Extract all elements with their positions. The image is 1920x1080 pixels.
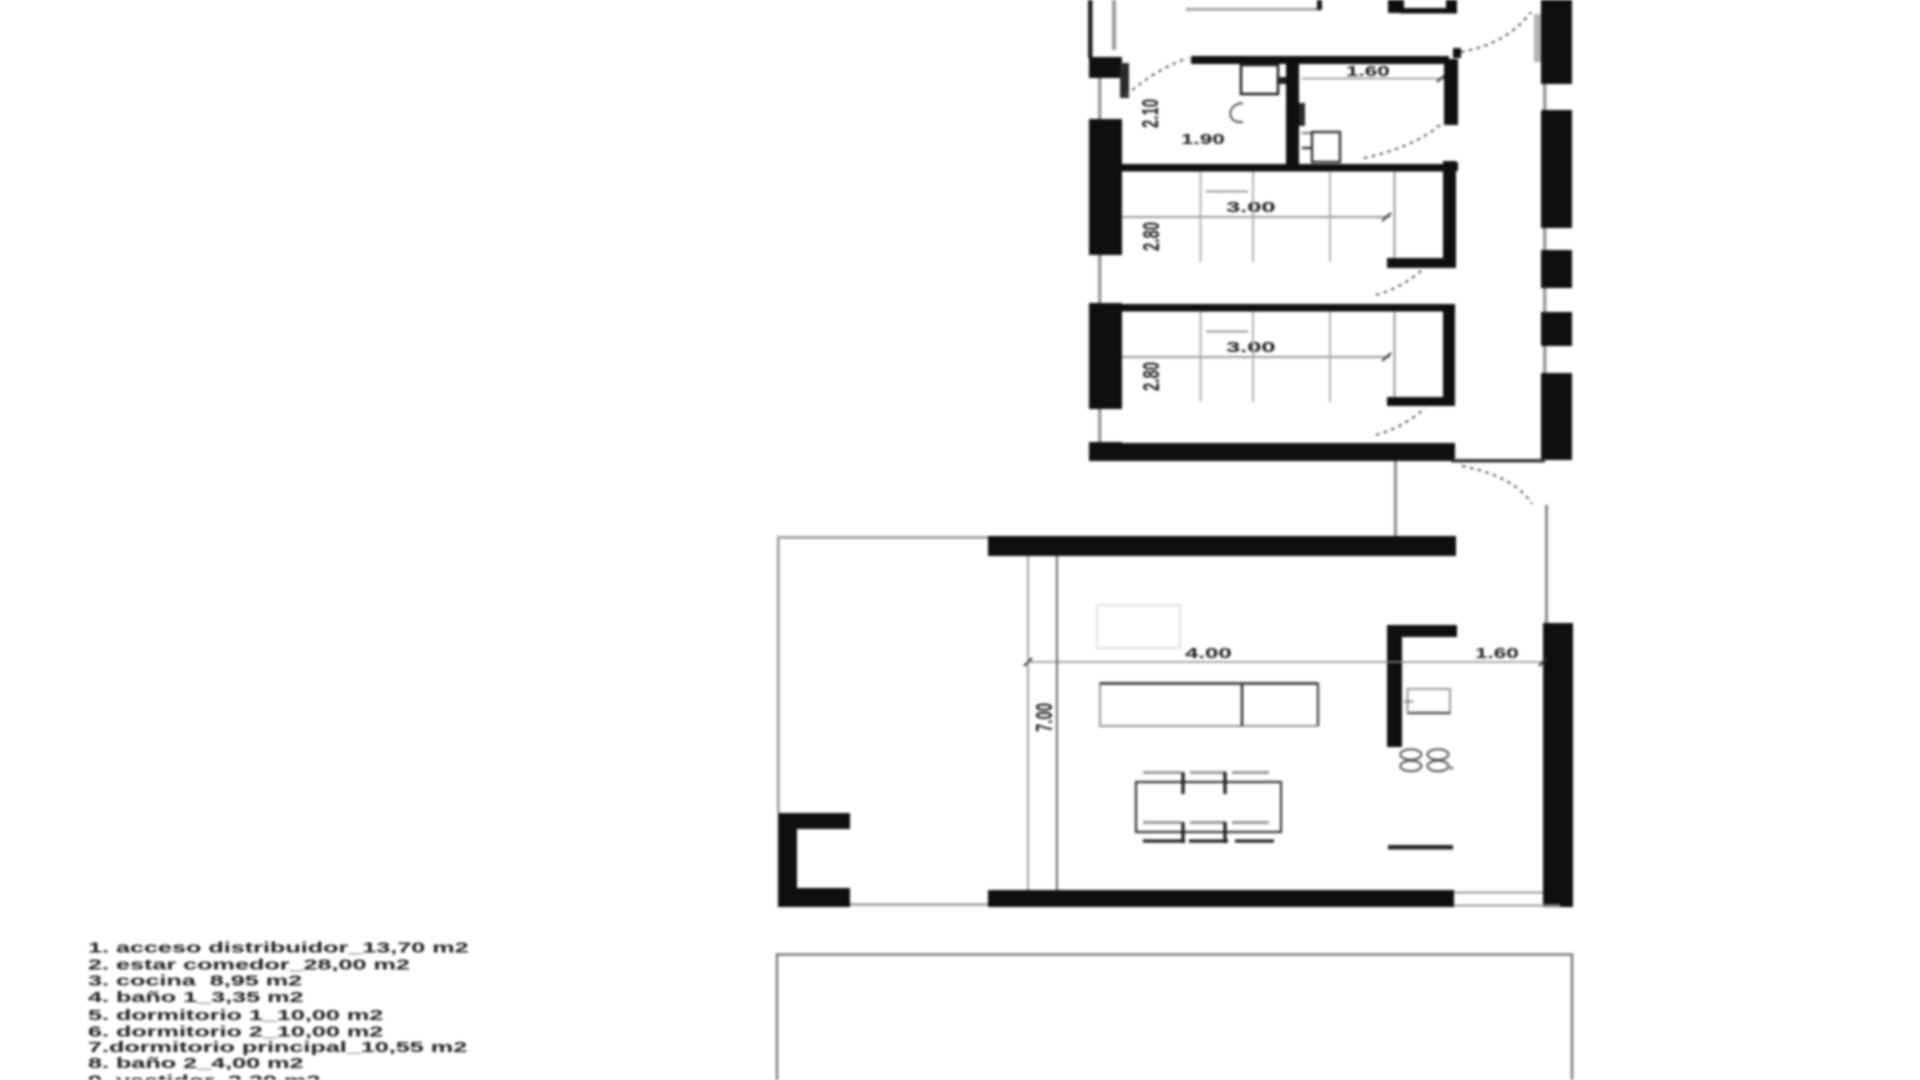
- svg-text:2.80: 2.80: [1139, 222, 1165, 251]
- svg-text:4.00: 4.00: [1185, 645, 1232, 661]
- svg-text:3.00: 3.00: [1226, 199, 1276, 215]
- svg-text:1.60: 1.60: [1475, 645, 1519, 661]
- svg-text:7.dormitorio principal_10,55 m: 7.dormitorio principal_10,55 m2: [88, 1039, 467, 1056]
- svg-text:5. dormitorio 1_10,00 m2: 5. dormitorio 1_10,00 m2: [88, 1007, 383, 1024]
- svg-text:6. dormitorio 2_10,00 m2: 6. dormitorio 2_10,00 m2: [88, 1023, 383, 1040]
- svg-text:2. estar comedor_28,00 m2: 2. estar comedor_28,00 m2: [88, 956, 410, 973]
- svg-text:2.10: 2.10: [1138, 99, 1164, 128]
- svg-text:7.00: 7.00: [1032, 703, 1058, 732]
- svg-text:1.90: 1.90: [1181, 131, 1225, 147]
- svg-text:2.80: 2.80: [1139, 362, 1165, 391]
- svg-text:3. cocina 8,95 m2: 3. cocina 8,95 m2: [88, 972, 302, 989]
- svg-text:8. baño 2_4,00 m2: 8. baño 2_4,00 m2: [88, 1055, 304, 1072]
- svg-text:1.60: 1.60: [1346, 63, 1390, 79]
- svg-text:1. acceso distribuidor_13,70 m: 1. acceso distribuidor_13,70 m2: [88, 939, 469, 956]
- svg-text:3.00: 3.00: [1226, 339, 1276, 355]
- svg-text:4. baño 1_3,35 m2: 4. baño 1_3,35 m2: [88, 989, 304, 1006]
- svg-text:9. vestidor 2,20 m2: 9. vestidor 2,20 m2: [88, 1072, 320, 1080]
